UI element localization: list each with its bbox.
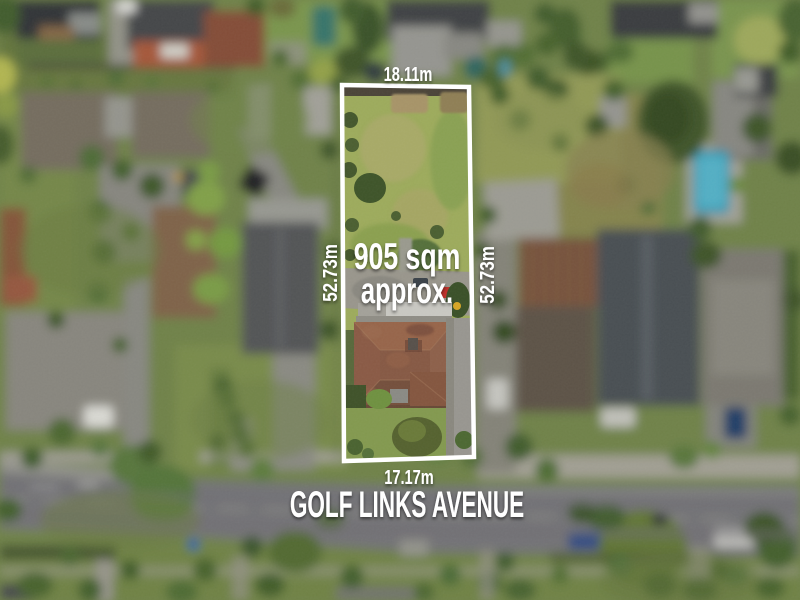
svg-text:GOLF LINKS AVENUE: GOLF LINKS AVENUE [290,484,524,525]
svg-text:approx.: approx. [361,269,453,311]
svg-text:18.11m: 18.11m [384,63,433,86]
svg-text:52.73m: 52.73m [319,244,342,302]
svg-text:52.73m: 52.73m [476,246,499,304]
